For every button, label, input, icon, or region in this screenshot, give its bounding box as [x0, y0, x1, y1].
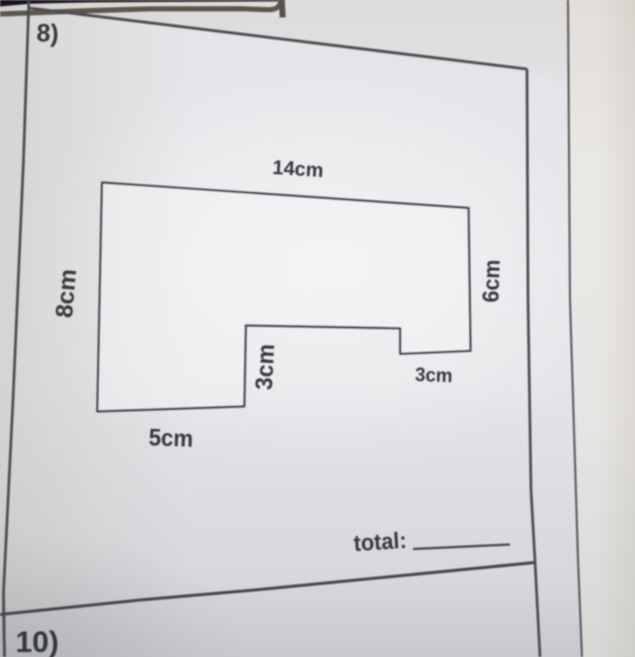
svg-text:8): 8) [36, 19, 59, 48]
svg-text:6cm: 6cm [477, 259, 504, 303]
svg-text:3cm: 3cm [251, 343, 280, 390]
svg-text:total:: total: [353, 527, 407, 556]
svg-text:10): 10) [16, 626, 59, 657]
svg-text:14cm: 14cm [272, 157, 324, 182]
svg-text:5cm: 5cm [148, 424, 193, 453]
svg-text:3cm: 3cm [415, 364, 453, 387]
svg-text:8cm: 8cm [51, 268, 82, 319]
